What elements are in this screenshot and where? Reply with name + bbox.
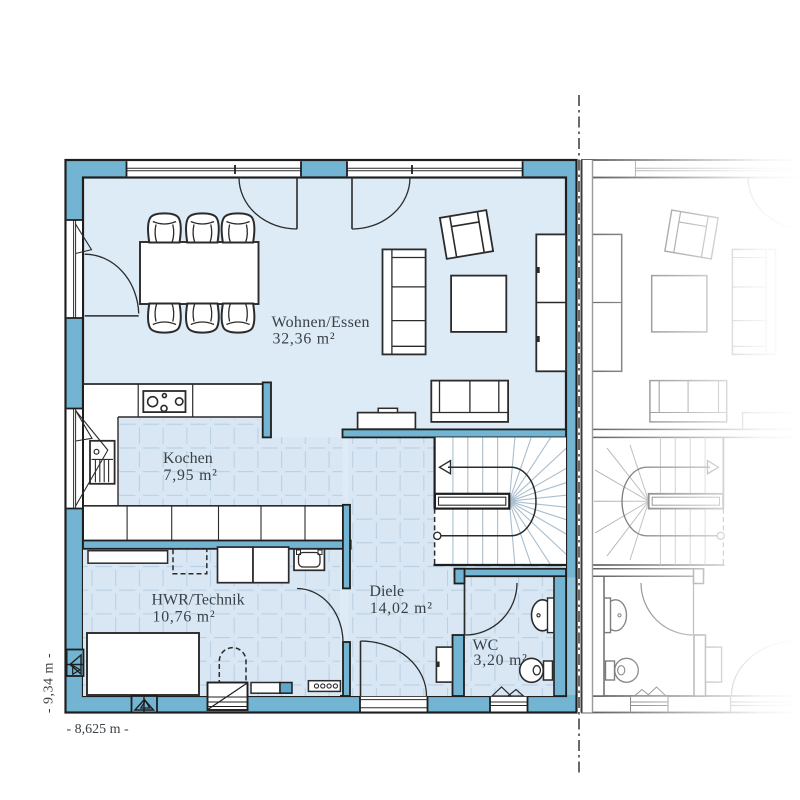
svg-text:7,95 m²: 7,95 m²	[164, 467, 218, 484]
svg-text:Diele: Diele	[369, 583, 404, 600]
svg-text:Wohnen/Essen: Wohnen/Essen	[272, 314, 370, 331]
svg-text:10,76 m²: 10,76 m²	[153, 609, 216, 626]
svg-text:- 8,625 m -: - 8,625 m -	[67, 722, 130, 737]
svg-text:HWR/Technik: HWR/Technik	[152, 592, 245, 609]
svg-text:14,02 m²: 14,02 m²	[370, 600, 433, 617]
svg-text:32,36 m²: 32,36 m²	[273, 331, 336, 348]
svg-text:Kochen: Kochen	[163, 450, 213, 467]
svg-text:3,20 m²: 3,20 m²	[474, 652, 528, 669]
svg-text:- 9,34 m -: - 9,34 m -	[42, 653, 57, 713]
